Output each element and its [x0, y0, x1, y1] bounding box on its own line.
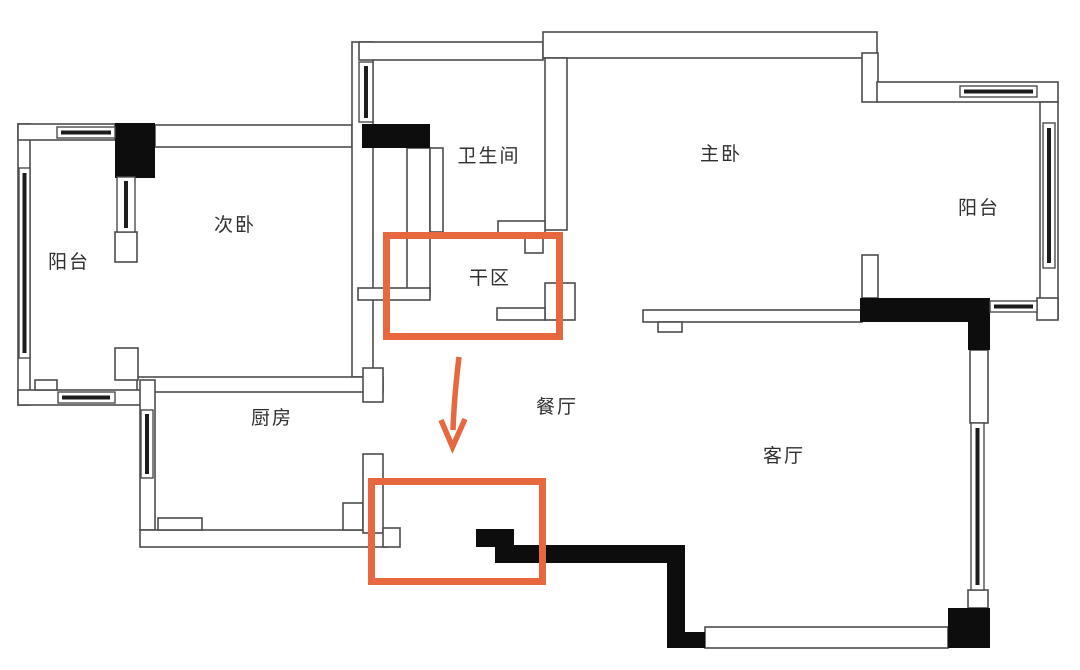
- wall: [430, 148, 443, 232]
- window-symbol: [141, 410, 153, 478]
- solid-wall: [860, 298, 990, 322]
- window-symbol: [971, 423, 984, 590]
- wall: [383, 528, 400, 547]
- wall: [158, 518, 202, 530]
- room-label-kitchen: 厨房: [251, 407, 293, 429]
- wall: [862, 255, 878, 298]
- window-symbol: [1043, 123, 1055, 268]
- room-label-balcony-left: 阳台: [48, 251, 90, 273]
- solid-wall: [667, 632, 705, 648]
- window-symbol: [58, 392, 115, 403]
- wall: [970, 350, 988, 423]
- solid-wall: [495, 545, 685, 563]
- wall: [115, 232, 137, 262]
- wall: [658, 322, 682, 332]
- window-symbol: [57, 127, 115, 138]
- room-labels-layer: 阳台 次卧 卫生间 主卧 阳台 干区 厨房 餐厅 客厅: [48, 143, 1000, 467]
- solid-wall: [968, 322, 990, 350]
- wall: [343, 503, 363, 530]
- wall: [525, 237, 543, 253]
- window-symbol: [990, 301, 1037, 312]
- wall: [497, 308, 545, 320]
- wall: [968, 590, 988, 608]
- window-symbol: [117, 177, 135, 232]
- window-symbol: [359, 62, 373, 122]
- wall: [407, 148, 430, 295]
- window-symbol: [19, 168, 30, 358]
- solid-wall: [362, 124, 430, 148]
- wall: [358, 288, 430, 300]
- wall: [498, 221, 545, 233]
- wall: [643, 310, 862, 322]
- wall: [140, 530, 387, 547]
- wall: [543, 32, 877, 58]
- solid-wall: [948, 608, 990, 648]
- wall: [1037, 298, 1058, 320]
- room-label-dining-room: 餐厅: [536, 396, 578, 418]
- solid-wall: [667, 563, 685, 632]
- window-symbol: [960, 86, 1037, 97]
- floor-plan-canvas: 阳台 次卧 卫生间 主卧 阳台 干区 厨房 餐厅 客厅: [0, 0, 1080, 670]
- move-arrow-shaft: [453, 357, 459, 430]
- wall: [35, 380, 57, 390]
- wall: [137, 377, 383, 392]
- room-label-living-room: 客厅: [763, 445, 805, 467]
- room-label-bathroom: 卫生间: [457, 145, 520, 167]
- wall: [115, 348, 138, 380]
- floor-plan-svg: 阳台 次卧 卫生间 主卧 阳台 干区 厨房 餐厅 客厅: [0, 0, 1080, 670]
- room-label-dry-area: 干区: [469, 267, 511, 289]
- room-label-secondary-bedroom: 次卧: [214, 214, 256, 236]
- solid-wall: [476, 529, 514, 547]
- wall: [862, 53, 878, 102]
- room-label-balcony-right: 阳台: [958, 197, 1000, 219]
- wall: [359, 42, 543, 60]
- wall: [363, 368, 383, 402]
- wall: [705, 627, 948, 648]
- wall: [155, 125, 352, 147]
- wall: [545, 58, 567, 230]
- solid-wall: [115, 123, 155, 178]
- room-label-master-bedroom: 主卧: [700, 143, 742, 165]
